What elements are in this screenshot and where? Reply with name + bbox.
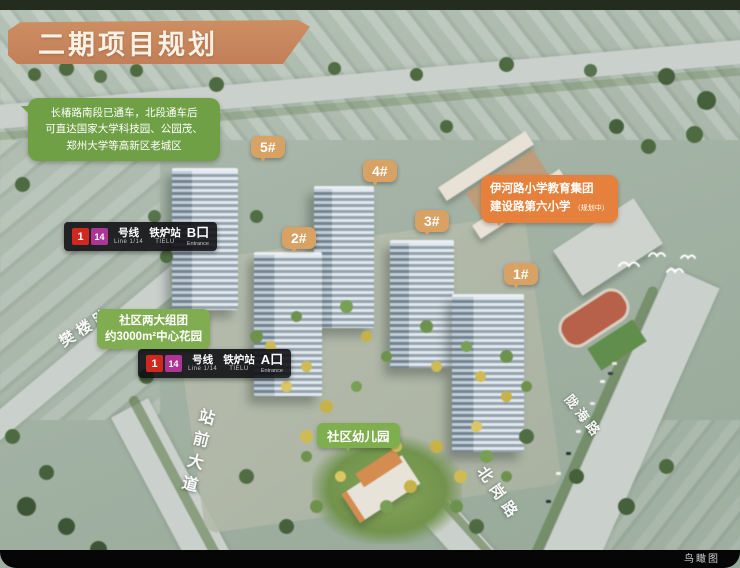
garden-callout: 社区两大组团 约3000m²中心花园 — [97, 309, 210, 349]
kindergarten-callout: 社区幼儿园 — [317, 423, 400, 448]
exit-label: B口 — [187, 226, 209, 241]
traffic-note-line: 郑州大学等高新区老城区 — [33, 138, 215, 154]
exit-label: A口 — [261, 353, 283, 368]
line-1-icon: 1 — [146, 355, 163, 372]
annotations: 二期项目规划 长椿路南段已通车，北段通车后 可直达国家大学科技园、公园茂、 郑州… — [0, 0, 740, 568]
line-sub: Line 1/14 — [188, 366, 217, 373]
top-strip — [0, 0, 740, 10]
road-label-beigang: 北岗路 — [473, 462, 526, 526]
metro-badge-exit-b: 1 14 号线 Line 1/14 铁炉站 TIELU B口 Entrance — [64, 222, 217, 251]
garden-callout-line1: 社区两大组团 — [105, 313, 202, 329]
line-14-icon: 14 — [165, 355, 182, 372]
aerial-caption: 鸟瞰图 — [684, 550, 720, 565]
exit-sub: Entrance — [261, 368, 283, 374]
garden-callout-line2: 约3000m²中心花园 — [105, 329, 202, 345]
school-note: （规划中） — [574, 205, 609, 212]
school-callout-line1: 伊河路小学教育集团 — [490, 181, 609, 199]
building-tag-5: 5# — [251, 136, 285, 158]
line-sub: Line 1/14 — [114, 239, 143, 246]
metro-line-name: 号线 Line 1/14 — [114, 227, 143, 246]
building-tag-3: 3# — [415, 210, 449, 232]
metro-line-badges: 1 14 — [146, 355, 182, 372]
school-callout: 伊河路小学教育集团 建设路第六小学 （规划中） — [481, 175, 618, 223]
station-sub: TIELU — [229, 366, 249, 373]
station-name: 铁炉站 — [223, 354, 255, 366]
line-text: 号线 — [118, 227, 139, 239]
metro-exit: A口 Entrance — [261, 353, 283, 374]
header-banner: 二期项目规划 — [8, 20, 310, 64]
line-text: 号线 — [192, 354, 213, 366]
line-14-icon: 14 — [91, 228, 108, 245]
metro-line-name: 号线 Line 1/14 — [188, 354, 217, 373]
school-name: 建设路第六小学 — [490, 201, 571, 213]
road-label-zhanqian: 站前大道 — [172, 405, 218, 500]
line-1-icon: 1 — [72, 228, 89, 245]
traffic-note-line: 可直达国家大学科技园、公园茂、 — [33, 121, 215, 137]
building-tag-2: 2# — [282, 227, 316, 249]
station-sub: TIELU — [155, 239, 175, 246]
page-title: 二期项目规划 — [38, 23, 218, 62]
metro-station: 铁炉站 TIELU — [149, 227, 181, 246]
bottom-bar: 鸟瞰图 — [0, 550, 740, 568]
metro-badge-exit-a: 1 14 号线 Line 1/14 铁炉站 TIELU A口 Entrance — [138, 349, 291, 378]
traffic-note: 长椿路南段已通车，北段通车后 可直达国家大学科技园、公园茂、 郑州大学等高新区老… — [28, 98, 220, 161]
metro-exit: B口 Entrance — [187, 226, 209, 247]
metro-station: 铁炉站 TIELU — [223, 354, 255, 373]
aerial-view: 二期项目规划 长椿路南段已通车，北段通车后 可直达国家大学科技园、公园茂、 郑州… — [0, 0, 740, 568]
traffic-note-line: 长椿路南段已通车，北段通车后 — [33, 105, 215, 121]
building-tag-1: 1# — [504, 263, 538, 285]
school-callout-line2: 建设路第六小学 （规划中） — [490, 199, 609, 217]
exit-sub: Entrance — [187, 241, 209, 247]
station-name: 铁炉站 — [149, 227, 181, 239]
road-label-longhai: 陇海路 — [561, 390, 607, 442]
building-tag-4: 4# — [363, 160, 397, 182]
metro-line-badges: 1 14 — [72, 228, 108, 245]
